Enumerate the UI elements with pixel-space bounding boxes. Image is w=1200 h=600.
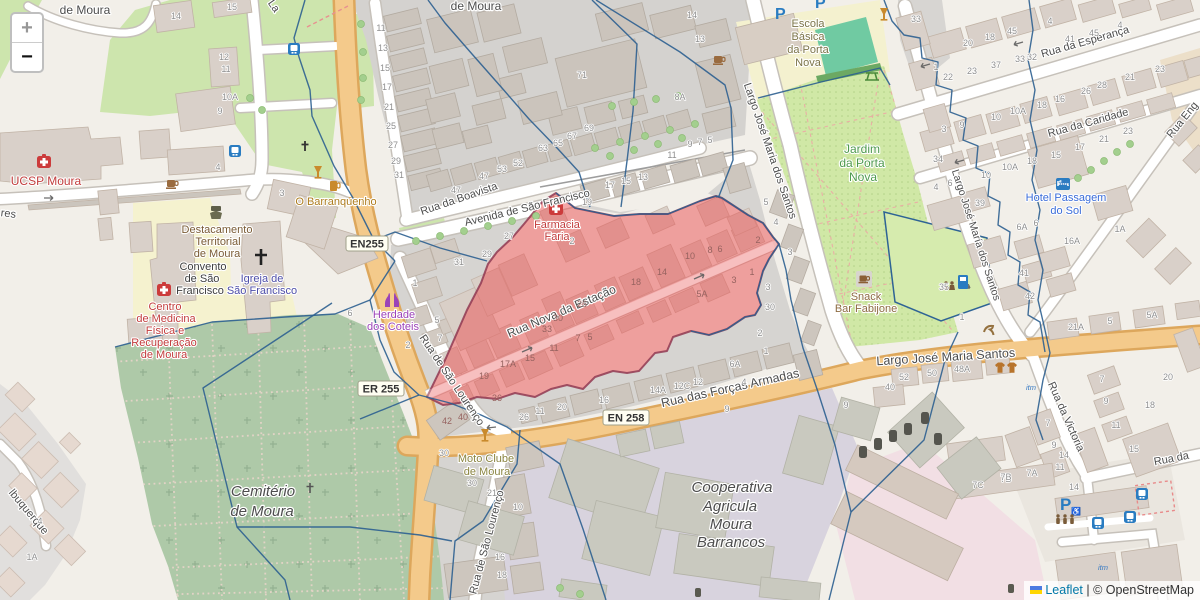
svg-text:2: 2 <box>757 328 762 338</box>
svg-text:33: 33 <box>1015 54 1025 64</box>
svg-text:Farmacia: Farmacia <box>534 219 581 231</box>
svg-text:2: 2 <box>755 235 760 245</box>
svg-text:Cemitério: Cemitério <box>231 483 295 500</box>
svg-text:6: 6 <box>717 244 722 254</box>
svg-text:23: 23 <box>1123 126 1133 136</box>
svg-text:7: 7 <box>1045 418 1050 428</box>
svg-text:6: 6 <box>347 308 352 318</box>
svg-text:5: 5 <box>763 197 768 207</box>
svg-text:4: 4 <box>741 377 746 387</box>
svg-text:7: 7 <box>697 137 702 147</box>
svg-text:67: 67 <box>567 131 577 141</box>
svg-text:10: 10 <box>513 502 523 512</box>
svg-text:33: 33 <box>542 324 552 334</box>
svg-text:Recuperação: Recuperação <box>131 337 196 349</box>
svg-text:P: P <box>775 6 786 23</box>
svg-text:5: 5 <box>707 135 712 145</box>
svg-text:de São: de São <box>185 273 220 285</box>
svg-text:19: 19 <box>582 197 592 207</box>
svg-text:11: 11 <box>667 150 676 160</box>
svg-text:Faria: Faria <box>544 231 570 243</box>
svg-text:de Medicina: de Medicina <box>136 313 196 325</box>
svg-text:15: 15 <box>380 63 390 73</box>
svg-text:7A: 7A <box>1026 468 1037 478</box>
svg-text:ER 255: ER 255 <box>363 384 400 396</box>
svg-text:Territorial: Territorial <box>195 236 240 248</box>
svg-text:18: 18 <box>497 570 507 580</box>
svg-text:18: 18 <box>631 277 641 287</box>
svg-text:16A: 16A <box>1064 236 1080 246</box>
svg-text:Moura: Moura <box>710 516 753 533</box>
svg-text:3: 3 <box>787 247 792 257</box>
svg-text:30: 30 <box>439 448 449 458</box>
svg-text:2: 2 <box>405 340 410 350</box>
svg-text:3: 3 <box>941 124 946 134</box>
svg-text:EN255: EN255 <box>350 239 384 251</box>
svg-text:14A: 14A <box>650 385 666 395</box>
svg-text:de Moura: de Moura <box>230 503 293 520</box>
svg-text:Nova: Nova <box>795 57 822 69</box>
svg-text:O Barranquenho: O Barranquenho <box>295 196 376 208</box>
svg-text:Francisco: Francisco <box>176 285 224 297</box>
svg-text:30: 30 <box>467 478 477 488</box>
svg-text:10: 10 <box>991 112 1001 122</box>
svg-text:42: 42 <box>1025 291 1035 301</box>
svg-text:17: 17 <box>1075 142 1085 152</box>
svg-text:11: 11 <box>221 64 230 74</box>
svg-text:18: 18 <box>1027 156 1037 166</box>
svg-text:40: 40 <box>885 382 895 392</box>
svg-text:7: 7 <box>575 333 580 343</box>
svg-text:32: 32 <box>1027 52 1037 62</box>
svg-text:21: 21 <box>1125 72 1135 82</box>
svg-text:7C: 7C <box>972 480 984 490</box>
svg-text:14: 14 <box>687 10 697 20</box>
svg-text:45: 45 <box>1007 26 1017 36</box>
svg-text:Básica: Básica <box>791 31 825 43</box>
svg-text:7B: 7B <box>1000 472 1011 482</box>
svg-text:26: 26 <box>519 412 529 422</box>
svg-text:5: 5 <box>434 315 439 325</box>
svg-text:45: 45 <box>1089 28 1099 38</box>
svg-text:20: 20 <box>1163 372 1173 382</box>
svg-text:9: 9 <box>1051 440 1056 450</box>
svg-text:5: 5 <box>1107 316 1112 326</box>
svg-text:5: 5 <box>587 332 592 342</box>
svg-text:30: 30 <box>553 313 563 323</box>
svg-text:São Francisco: São Francisco <box>227 285 297 297</box>
svg-text:53: 53 <box>497 164 507 174</box>
svg-text:19: 19 <box>479 371 489 381</box>
svg-text:15: 15 <box>1129 444 1139 454</box>
svg-text:1: 1 <box>763 346 768 356</box>
svg-text:34: 34 <box>933 154 943 164</box>
svg-text:10: 10 <box>685 251 695 261</box>
svg-text:25: 25 <box>386 121 396 131</box>
svg-text:69: 69 <box>584 123 594 133</box>
svg-text:10A: 10A <box>1010 106 1026 116</box>
svg-text:res: res <box>0 207 17 221</box>
svg-text:1: 1 <box>412 278 417 288</box>
svg-text:10: 10 <box>981 170 991 180</box>
svg-text:Destacamento: Destacamento <box>182 224 253 236</box>
svg-text:3: 3 <box>765 282 770 292</box>
svg-text:15: 15 <box>1051 150 1061 160</box>
svg-text:14: 14 <box>657 267 667 277</box>
svg-text:11: 11 <box>376 23 385 33</box>
svg-text:42: 42 <box>442 416 452 426</box>
svg-text:21: 21 <box>384 102 394 112</box>
svg-text:de Moura: de Moura <box>194 248 241 260</box>
svg-text:Escola: Escola <box>791 18 825 30</box>
svg-text:itm: itm <box>1098 563 1108 572</box>
svg-text:13: 13 <box>638 172 648 182</box>
svg-text:do Sol: do Sol <box>1050 205 1081 217</box>
svg-text:7: 7 <box>1099 374 1104 384</box>
svg-text:37: 37 <box>991 60 1001 70</box>
svg-text:6: 6 <box>947 178 952 188</box>
svg-text:21: 21 <box>487 488 497 498</box>
svg-text:4: 4 <box>215 162 220 172</box>
svg-text:11: 11 <box>1111 420 1120 430</box>
svg-text:28: 28 <box>1097 80 1107 90</box>
svg-text:12C: 12C <box>674 381 691 391</box>
svg-text:da Porta: da Porta <box>839 156 885 170</box>
svg-text:31: 31 <box>454 257 464 267</box>
svg-text:18: 18 <box>985 32 995 42</box>
svg-text:Barrancos: Barrancos <box>697 534 766 551</box>
svg-text:Hotel Passagem: Hotel Passagem <box>1026 192 1107 204</box>
svg-text:10A: 10A <box>222 92 238 102</box>
svg-text:de Moura: de Moura <box>141 349 188 361</box>
svg-text:Bar Fabijone: Bar Fabijone <box>835 303 897 315</box>
svg-text:Convento: Convento <box>179 261 226 273</box>
svg-text:1A: 1A <box>1114 224 1125 234</box>
svg-text:41: 41 <box>1019 268 1029 278</box>
svg-text:Moto Clube: Moto Clube <box>458 453 514 465</box>
svg-text:4: 4 <box>1117 20 1122 30</box>
svg-text:Jardim: Jardim <box>844 142 880 156</box>
svg-text:8: 8 <box>707 245 712 255</box>
svg-text:20: 20 <box>963 38 973 48</box>
svg-text:48A: 48A <box>954 364 970 374</box>
svg-text:EN 258: EN 258 <box>608 413 645 425</box>
svg-text:15: 15 <box>525 353 535 363</box>
svg-text:Snack: Snack <box>851 291 882 303</box>
svg-text:de Moura: de Moura <box>60 3 111 17</box>
svg-text:11: 11 <box>549 343 558 353</box>
svg-text:6A: 6A <box>729 359 740 369</box>
svg-text:de Moura: de Moura <box>464 466 511 478</box>
svg-text:6: 6 <box>1033 218 1038 228</box>
svg-text:14: 14 <box>1059 450 1069 460</box>
svg-text:9: 9 <box>1103 396 1108 406</box>
svg-text:12: 12 <box>693 377 703 387</box>
svg-text:17: 17 <box>382 82 392 92</box>
svg-text:10A: 10A <box>1002 162 1018 172</box>
svg-text:Herdade: Herdade <box>373 309 415 321</box>
svg-text:18: 18 <box>1037 100 1047 110</box>
svg-text:Centro: Centro <box>148 301 181 313</box>
svg-text:18: 18 <box>1145 400 1155 410</box>
svg-text:5A: 5A <box>1146 310 1157 320</box>
svg-text:3: 3 <box>279 188 284 198</box>
svg-text:30: 30 <box>765 302 775 312</box>
svg-text:52: 52 <box>899 372 909 382</box>
svg-text:26: 26 <box>577 299 587 309</box>
svg-text:71: 71 <box>577 70 587 80</box>
svg-text:15: 15 <box>227 2 237 12</box>
svg-text:9: 9 <box>217 106 222 116</box>
svg-text:11: 11 <box>535 406 544 416</box>
svg-text:16: 16 <box>1055 94 1065 104</box>
svg-text:22: 22 <box>943 72 953 82</box>
svg-text:52: 52 <box>513 158 523 168</box>
svg-text:47: 47 <box>451 185 461 195</box>
svg-text:P: P <box>1060 495 1071 514</box>
svg-text:21: 21 <box>1099 134 1109 144</box>
svg-text:50: 50 <box>927 368 937 378</box>
svg-text:63: 63 <box>538 143 548 153</box>
svg-text:itm: itm <box>1060 178 1070 187</box>
svg-text:7: 7 <box>437 333 442 343</box>
svg-text:17A: 17A <box>500 359 516 369</box>
svg-text:29: 29 <box>482 249 492 259</box>
svg-text:23: 23 <box>967 66 977 76</box>
svg-text:1: 1 <box>959 312 964 322</box>
svg-text:1: 1 <box>933 62 938 72</box>
svg-text:itm: itm <box>1026 383 1036 392</box>
svg-text:8A: 8A <box>674 92 685 102</box>
svg-text:14: 14 <box>171 11 181 21</box>
svg-text:Cooperativa: Cooperativa <box>692 479 773 496</box>
svg-text:27: 27 <box>504 231 514 241</box>
svg-text:23: 23 <box>1155 64 1165 74</box>
svg-text:9: 9 <box>724 404 729 414</box>
svg-text:41: 41 <box>1065 34 1075 44</box>
svg-text:14: 14 <box>1069 482 1079 492</box>
svg-text:9: 9 <box>959 120 964 130</box>
svg-text:4: 4 <box>37 516 42 526</box>
svg-text:1A: 1A <box>26 552 37 562</box>
svg-text:1: 1 <box>749 267 754 277</box>
svg-text:16: 16 <box>495 552 505 562</box>
svg-text:31: 31 <box>394 170 404 180</box>
svg-text:36: 36 <box>492 393 502 403</box>
svg-text:29: 29 <box>391 156 401 166</box>
svg-text:3: 3 <box>731 275 736 285</box>
svg-text:27: 27 <box>388 140 398 150</box>
svg-text:Igreja de: Igreja de <box>241 273 284 285</box>
svg-text:33: 33 <box>911 14 921 24</box>
svg-text:21A: 21A <box>1068 322 1084 332</box>
svg-text:UCSP Moura: UCSP Moura <box>11 174 82 188</box>
svg-text:13: 13 <box>695 34 705 44</box>
svg-text:13: 13 <box>378 43 388 53</box>
svg-text:6A: 6A <box>1016 222 1027 232</box>
svg-text:de Moura: de Moura <box>451 0 502 13</box>
svg-text:5A: 5A <box>696 289 707 299</box>
svg-text:4: 4 <box>773 217 778 227</box>
svg-text:4: 4 <box>1047 16 1052 26</box>
svg-text:da Porta: da Porta <box>787 44 829 56</box>
svg-text:47: 47 <box>479 171 489 181</box>
svg-text:40: 40 <box>458 412 468 422</box>
svg-text:15: 15 <box>621 176 631 186</box>
svg-text:Agricula: Agricula <box>702 498 757 515</box>
svg-text:20: 20 <box>557 402 567 412</box>
svg-text:12: 12 <box>219 52 229 62</box>
svg-text:39: 39 <box>975 198 985 208</box>
svg-text:9: 9 <box>843 400 848 410</box>
svg-text:35: 35 <box>939 282 949 292</box>
svg-text:2: 2 <box>569 236 574 246</box>
svg-text:9: 9 <box>687 139 692 149</box>
svg-text:17: 17 <box>605 180 615 190</box>
svg-text:Física e: Física e <box>146 325 185 337</box>
svg-text:4: 4 <box>933 182 938 192</box>
svg-text:P: P <box>815 0 826 12</box>
svg-text:16: 16 <box>599 395 609 405</box>
svg-text:26: 26 <box>1081 86 1091 96</box>
svg-text:dos Coteis: dos Coteis <box>367 321 419 333</box>
svg-text:Nova: Nova <box>849 170 877 184</box>
svg-text:65: 65 <box>553 138 563 148</box>
svg-text:11: 11 <box>1055 462 1064 472</box>
